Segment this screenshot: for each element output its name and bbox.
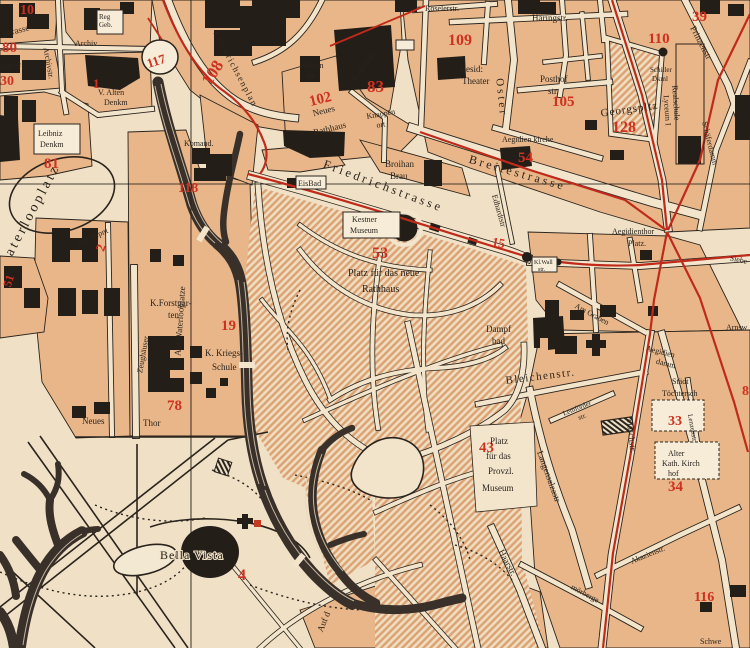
svg-text:Kestner: Kestner [352,215,377,224]
svg-text:8: 8 [742,384,749,399]
svg-text:80: 80 [2,40,17,56]
svg-text:Brau: Brau [390,171,408,181]
svg-text:Broihan: Broihan [385,159,414,169]
svg-text:V. Alten: V. Alten [98,88,124,97]
svg-text:Platz: Platz [490,436,508,446]
svg-text:Neues: Neues [82,416,105,426]
svg-text:19: 19 [221,318,236,334]
svg-text:hof: hof [668,469,679,478]
svg-text:Theater: Theater [462,76,489,86]
svg-text:4: 4 [238,567,246,584]
svg-text:Städt: Städt [672,377,689,386]
svg-text:Rathhaus: Rathhaus [362,284,399,295]
svg-text:Aegidienthor: Aegidienthor [612,227,655,236]
svg-text:Archiv: Archiv [75,39,97,48]
svg-text:Platz für das neue: Platz für das neue [348,268,420,279]
svg-text:Arnsw: Arnsw [726,323,748,332]
svg-text:Dampf: Dampf [486,324,511,334]
svg-text:34: 34 [668,479,684,495]
svg-text:Denkm: Denkm [40,140,64,149]
svg-text:110: 110 [648,31,670,47]
svg-text:78: 78 [167,398,182,414]
svg-text:Kath. Kirch: Kath. Kirch [662,459,700,468]
svg-text:EisBad: EisBad [298,179,321,188]
svg-text:Posthof: Posthof [540,74,568,84]
svg-text:str.: str. [306,71,316,80]
svg-text:str.: str. [538,267,546,273]
svg-text:Museum: Museum [482,483,514,493]
svg-text:118: 118 [178,181,198,196]
svg-text:Kl.Wall: Kl.Wall [534,260,553,266]
svg-text:Provzl.: Provzl. [488,466,514,476]
svg-text:Aegidien kirche: Aegidien kirche [502,135,554,144]
svg-text:54: 54 [518,150,534,166]
svg-text:116: 116 [694,590,714,605]
svg-text:Töchtersch: Töchtersch [662,389,698,398]
svg-text:128: 128 [612,119,636,136]
svg-text:Bella Vista: Bella Vista [160,548,224,562]
svg-text:Denkm: Denkm [104,98,128,107]
svg-text:39: 39 [692,9,707,25]
svg-text:Häringstr.: Häringstr. [532,13,568,23]
svg-text:Komand.: Komand. [184,139,214,148]
svg-text:Schiller: Schiller [650,66,672,74]
svg-text:Resid:: Resid: [460,64,483,74]
svg-text:Geb.: Geb. [99,21,113,29]
svg-text:105: 105 [552,94,575,110]
svg-text:str.: str. [548,86,559,96]
svg-text:30: 30 [0,74,14,89]
svg-text:K. Kriegs-: K. Kriegs- [205,348,243,358]
svg-text:Platz.: Platz. [628,239,646,248]
svg-text:33: 33 [668,414,682,429]
svg-text:Museum: Museum [350,226,379,235]
svg-text:53: 53 [372,245,388,262]
svg-text:83: 83 [367,77,384,96]
svg-text:Kühlen: Kühlen [300,61,324,70]
svg-text:Dkml: Dkml [652,75,668,83]
svg-text:Röselerstr.: Röselerstr. [425,4,459,13]
svg-text:Reg: Reg [99,13,111,21]
svg-text:Schule: Schule [212,362,237,372]
svg-text:109: 109 [448,32,472,49]
svg-text:Schwe: Schwe [700,637,722,646]
svg-text:Thor: Thor [143,418,161,428]
svg-text:Leibniz: Leibniz [38,129,63,138]
svg-text:10: 10 [20,3,34,18]
svg-text:für das: für das [486,451,511,461]
svg-text:bad: bad [492,336,505,346]
svg-text:Alter: Alter [668,449,685,458]
